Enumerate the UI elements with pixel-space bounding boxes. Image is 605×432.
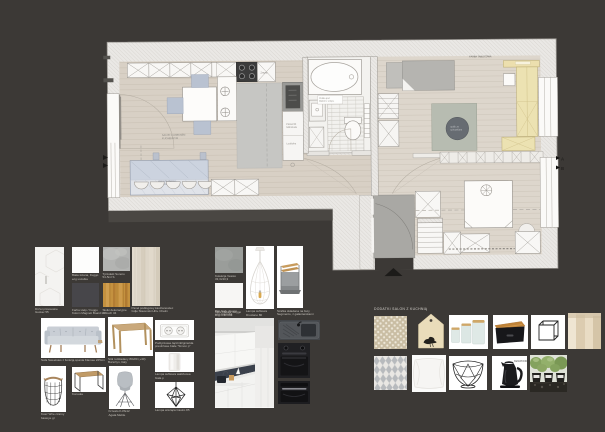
svg-text:blatem z umyw.: blatem z umyw. bbox=[319, 100, 334, 103]
svg-text:KENWOOD: KENWOOD bbox=[514, 360, 527, 363]
svg-text:Zmyw.: Zmyw. bbox=[260, 70, 268, 74]
svg-text:schowkiem: schowkiem bbox=[450, 128, 462, 131]
svg-text:B: B bbox=[561, 166, 564, 171]
svg-text:FARBA TABLICOWA: FARBA TABLICOWA bbox=[469, 55, 492, 58]
svg-text:KUCHENNYM: KUCHENNYM bbox=[162, 137, 178, 140]
svg-text:MikroFala: MikroFala bbox=[286, 126, 297, 129]
svg-text:Pralka pod: Pralka pod bbox=[319, 97, 330, 100]
svg-text:A: A bbox=[561, 157, 564, 162]
svg-text:Lodówka: Lodówka bbox=[286, 142, 296, 145]
